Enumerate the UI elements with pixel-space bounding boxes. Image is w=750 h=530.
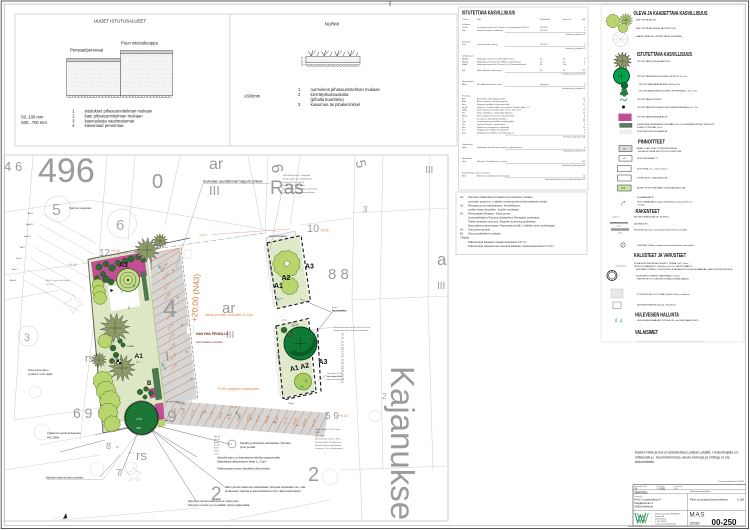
svg-text:Hun 16: Hun 16: [214, 436, 220, 438]
svg-text:Kuivausjalusteineet KD/02: Kuivausjalusteineet KD/02: [718, 480, 744, 483]
svg-text:pintavesien valunta ei olisi k: pintavesien valunta ei olisi kohdistunut…: [225, 489, 302, 493]
svg-text:37E8: 37E8: [315, 432, 319, 434]
svg-text:Köynnökset, yhteensä 3: Köynnökset, yhteensä 3: [564, 150, 586, 153]
svg-text:Sailytettava alkuperainen laat: Sailytettava alkuperainen laata 1..2 kpl…: [217, 460, 268, 464]
svg-text:B1: B1: [460, 232, 464, 236]
svg-text:Pinus sylvestris, mänty: Pinus sylvestris, mänty: [477, 43, 497, 46]
svg-text:NYKYINEN LEHTIPENSASAITA: NYKYINEN LEHTIPENSASAITA: [637, 130, 668, 133]
svg-text:Crataegus media 'Paul's Scarle: Crataegus media 'Paul's Scarlet', ruusuo…: [477, 26, 530, 29]
svg-text:olev kspuut 3:1 kpl: olev kspuut 3:1 kpl: [327, 372, 343, 375]
svg-text:HULEVESIÄ KERÄÄVÄ ISTUTUSALUE,: HULEVESIÄ KERÄÄVÄ ISTUTUSALUE, vain KAUU…: [637, 319, 700, 322]
svg-text:· · ·: · · ·: [620, 195, 625, 199]
svg-text:A1: A1: [135, 353, 144, 360]
svg-text:Puun istutuskuoppa: Puun istutuskuoppa: [121, 41, 158, 46]
svg-text:A2: A2: [282, 275, 291, 282]
svg-text:Kva 16: Kva 16: [214, 445, 220, 447]
svg-text:Kasvualusta parannetaan. Narsi: Kasvualusta parannetaan. Narsisseja juur…: [468, 224, 556, 228]
svg-text:5 9: 5 9: [325, 411, 339, 422]
svg-text:NYKYINEN ASFALTTI: NYKYINEN ASFALTTI: [637, 157, 658, 160]
svg-text:Lamprocapnos spectabilis, särk: Lamprocapnos spectabilis, särkynytsydän: [477, 120, 514, 123]
svg-text:tarkemitattu.: tarkemitattu.: [635, 460, 655, 464]
svg-text:00-250: 00-250: [712, 518, 737, 527]
svg-text:Nimi: Nimi: [477, 19, 482, 21]
svg-text:ASFALTTI AB, UUSI. JYSITETEEN-: ASFALTTI AB, UUSI. JYSITETEEN-EIÄ JA: [637, 147, 677, 150]
svg-text:ISTUTETTAVA KASVILLISUUS: ISTUTETTAVA KASVILLISUUS: [462, 11, 515, 17]
svg-text:Hydrangea arborescens 'Annabel: Hydrangea arborescens 'Annabelle' h=1m: [477, 57, 515, 60]
svg-text:+8.05: +8.05: [136, 418, 143, 421]
svg-text:Sipulikukat: Sipulikukat: [462, 157, 472, 160]
svg-text:A1: A1: [460, 195, 464, 199]
svg-text:+8.30: +8.30: [230, 405, 238, 409]
svg-text:Ennole 20te2. od. huolehdta la: Ennole 20te2. od. huolehdta laitt.: [283, 177, 313, 180]
svg-text:IQ1 2x4 IO34x 9 10uo 1 .980u: IQ1 2x4 IO34x 9 10uo 1 .980u: [315, 439, 340, 441]
svg-text:laatta 1: laatta 1: [332, 306, 338, 309]
svg-text:A3: A3: [119, 262, 128, 269]
svg-text:22030: 22030: [690, 521, 700, 525]
svg-text:Tilalle istutetaan uusi puu.: Tilalle istutetaan uusi puu. Poppelin ju…: [468, 220, 537, 224]
svg-text:KUIVAUSTELINE/ METALLIRUNKO, T: KUIVAUSTELINE/ METALLIRUNKO, TUMMA. 4x(2…: [634, 262, 689, 265]
svg-text:A4: A4: [460, 228, 464, 232]
svg-text:Pensaat/perenaat: Pensaat/perenaat: [70, 48, 104, 53]
svg-text:Hosta fortunei, komeakuunlilja: Hosta fortunei, komeakuunlilja - Hosta '…: [477, 109, 522, 112]
svg-text:Nars: Nars: [462, 161, 466, 163]
svg-text:kaivumaa tai pihakerrokset: kaivumaa tai pihakerrokset: [311, 102, 362, 107]
svg-text:1: 1: [128, 306, 130, 310]
svg-text:muuri: muuri: [617, 225, 622, 228]
svg-text:+6.40: +6.40: [68, 263, 77, 267]
svg-text:Pensasaidat leikataan. Kaksi p: Pensasaidat leikataan. Kaksi puuta: [468, 211, 510, 215]
svg-text:OLEVA JA KAADETTAVA KASVILLISU: OLEVA JA KAADETTAVA KASVILLISUUS: [634, 11, 708, 17]
svg-text:SEN ALLA OLEVA JUNTOITUS POURE: SEN ALLA OLEVA JUNTOITUS POUREITUNE: [638, 150, 682, 153]
svg-text:6 9: 6 9: [73, 405, 93, 421]
svg-text:KpaR 1: KpaR 1: [24, 236, 32, 238]
svg-text:puun juurilla: puun juurilla: [240, 445, 256, 449]
svg-text:8: 8: [106, 441, 111, 451]
svg-text:A3: A3: [305, 264, 314, 271]
svg-text:B: B: [147, 381, 152, 387]
svg-text:A3: A3: [460, 211, 464, 215]
svg-text:Aruncus dioicus, isotöyhtöange: Aruncus dioicus, isotöyhtöangervo: [477, 100, 508, 103]
svg-text:+8.50: +8.50: [320, 229, 329, 233]
svg-text:4: 4: [4, 159, 11, 174]
svg-text:ILMAN PYÖRISTÄÄ, H 1m: ILMAN PYÖRISTÄÄ, H 1m: [637, 126, 662, 129]
svg-text:PYSAKB: PYSAKB: [126, 345, 135, 348]
svg-text:LAUTAMUURI: LAUTAMUURI: [634, 222, 648, 225]
svg-text:PUURUNKOJ/ VARPIKI, MATERIAALI: PUURUNKOJ/ VARPIKI, MATERIAALI, h=koryt: [636, 274, 680, 277]
svg-text:III: III: [437, 281, 445, 292]
svg-text:RUNKOON MAALATTU. 600x50cm h=: RUNKOON MAALATTU. 600x50cm h=1.2m. VÄRIÖ…: [634, 265, 693, 268]
svg-text:Perennat: Perennat: [462, 94, 471, 97]
svg-text:BETONITUKIMUURIALUE, SILIVELU: BETONITUKIMUURIALUE, SILIVELU: [634, 216, 669, 219]
svg-text:LM: LM: [462, 124, 465, 126]
svg-text:Rakennesuunnitelma: Rakennesuunnitelma: [690, 490, 711, 493]
svg-text:Hydrangea paniculata 'Grandifl: Hydrangea paniculata 'Grandiflora', syys…: [477, 60, 522, 63]
svg-text:Kivetyn: Kivetyn: [638, 203, 646, 206]
svg-text:6: 6: [116, 217, 124, 234]
svg-text:Hosta undulata 'Erromena', käl: Hosta undulata 'Erromena', kälmäkuunlilj…: [477, 114, 515, 117]
svg-text:0: 0: [152, 171, 163, 193]
svg-text:Aral 1: Aral 1: [28, 212, 34, 215]
svg-text:Pisy: Pisy: [462, 44, 466, 46]
svg-text:Havupuut: Havupuut: [462, 40, 471, 43]
svg-text:4: 4: [163, 295, 177, 323]
svg-text:betonilaatat pohjalta: betonilaatat pohjalta: [196, 340, 223, 344]
svg-text:6: 6: [15, 159, 22, 174]
svg-text:nays! depot: nays! depot: [315, 434, 325, 437]
svg-text:Telkinamarja istutus kahdella: Telkinamarja istutus kahdella rivilla li…: [217, 467, 271, 471]
svg-text:rs: rs: [136, 448, 147, 463]
svg-text:Sorc 1: Sorc 1: [12, 269, 19, 271]
svg-text:A2: A2: [460, 203, 464, 207]
svg-text:CraPa: CraPa: [462, 27, 469, 29]
svg-text:KIEPPIKOETTU/ TURKISTETTURAUTK: KIEPPIKOETTU/ TURKISTETTURAUTKUNKA PÄÄLL…: [637, 277, 689, 280]
svg-text:Perennat, yhteensä 123: Perennat, yhteensä 123: [564, 135, 586, 138]
svg-text:Köynnökset: Köynnökset: [462, 143, 473, 146]
svg-text:Lehtipuut: Lehtipuut: [462, 23, 471, 26]
svg-text:2: 2: [133, 284, 135, 288]
svg-text:näky?llä tätäkp? ho?julkis?val: näky?llä tätäkp? ho?julkis?valamia? ? m?…: [637, 340, 705, 343]
svg-text:921 80ab 8xPfu 1/2 90ap nfuus: 921 80ab 8xPfu 1/2 90ap nfuus: [315, 442, 341, 444]
svg-text:Bergenia cordifolia, herttavuo: Bergenia cordifolia, herttavuorenkilpi: [477, 103, 510, 106]
svg-text:Lehtipuut, yhteensä 2: Lehtipuut, yhteensä 2: [566, 33, 586, 36]
svg-text:5: 5: [52, 202, 61, 219]
svg-text:eleva kr-kaytava: eleva kr-kaytava: [269, 235, 287, 238]
svg-text:ISTUTETTAVA KESKIKOKOINEN LEHT: ISTUTETTAVA KESKIKOKOINEN LEHTIPENSAS 1,…: [639, 90, 697, 93]
svg-text:≥300mm: ≥300mm: [244, 94, 261, 99]
svg-text:NUR: NUR: [621, 188, 626, 190]
svg-text:Yläpiha:: Yläpiha:: [460, 236, 470, 240]
svg-text:ISTUTETTAVA KESKIKOKOINEN LEHT: ISTUTETTAVA KESKIKOKOINEN LEHTIPUU 3,5..…: [637, 75, 687, 78]
svg-text:Tunnus: Tunnus: [462, 19, 469, 21]
svg-text:Sipulikukat, yhteensä 100: Sipulikukat, yhteensä 100: [562, 164, 586, 167]
svg-text:Ribes alpinum, taikinamarja: Ribes alpinum, taikinamarja: [477, 69, 502, 72]
svg-text:bfgh 41 xxpyoln uwbx hktklop: bfgh 41 xxpyoln uwbx hktklop: [46, 279, 69, 282]
svg-text:Kajanuksenkatu: Kajanuksenkatu: [384, 366, 421, 530]
svg-text:tukimuuri: tukimuuri: [613, 216, 620, 219]
svg-text:Osfu 7: Osfu 7: [214, 451, 219, 453]
svg-text:KIVIPESÄ, 610 As, yhteydet ist: KIVIPESÄ, 610 As, yhteydet istutuspainot…: [637, 244, 695, 247]
svg-text:Hydrangea paniculata 'Praecox': Hydrangea paniculata 'Praecox' h=2, kuut…: [477, 63, 527, 66]
svg-text:+9.10: +9.10: [339, 414, 348, 418]
svg-text:11.02.2021: 11.02.2021: [635, 526, 643, 528]
svg-text:HofA: HofA: [462, 109, 467, 112]
svg-text:PINNOITTEET: PINNOITTEET: [638, 140, 666, 146]
svg-text:Heuchera 'Timeless Night', kei: Heuchera 'Timeless Night', keijunkukka '…: [477, 106, 530, 109]
svg-text:125-150: 125-150: [540, 30, 548, 32]
svg-text:Pateceva lat raiteet: Pateceva lat raiteet: [28, 369, 49, 372]
svg-text:NURMI: NURMI: [325, 22, 339, 27]
svg-text:SÄILYTETTÄVÄ PUU: SÄILYTETTÄVÄ PUU: [636, 18, 657, 21]
svg-text:Lam: Lam: [462, 121, 466, 123]
svg-text:Taikinamarja raskaamman vieres: Taikinamarja raskaamman vieressä leikata…: [468, 244, 554, 248]
svg-text:Piha- ja ympäristösuunnitelma: Piha- ja ympäristösuunnitelma: [690, 497, 728, 501]
svg-text:Rakmalit alustan valmistelukuk: Rakmalit alustan valmistelukuk: [315, 444, 341, 447]
svg-text:KIVIREUNUS + KASVUALUSTA: KIVIREUNUS + KASVUALUSTA: [637, 177, 668, 180]
svg-text:Hpet: Hpet: [462, 146, 467, 149]
svg-text:Iris sibirica, siperiankurjenm: Iris sibirica, siperiankurjenmiekka: [477, 118, 507, 120]
svg-text:150-200: 150-200: [540, 27, 548, 29]
svg-text:EH-KIOSKI (betoni), vanhatehda: EH-KIOSKI (betoni), vanhatehdas Kioski, …: [634, 229, 688, 232]
svg-text:kk-et. (m): kk-et. (m): [563, 18, 572, 21]
svg-text:ISTUTETTAVA KASVILLISUUS: ISTUTETTAVA KASVILLISUUS: [637, 52, 692, 58]
svg-text:tunu: tunu: [136, 361, 140, 364]
svg-text:Narcissus 'Dutch Master', nars: Narcissus 'Dutch Master', narsissi: [477, 160, 507, 163]
svg-text:ISTUTETTAVA PERENNA-ALUE: ISTUTETTAVA PERENNA-ALUE: [637, 116, 668, 119]
svg-text:NAKYMA PENKILLE: NAKYMA PENKILLE: [196, 332, 229, 336]
svg-text:HULEVESIEN HALLINTA: HULEVESIEN HALLINTA: [635, 312, 679, 318]
svg-text:JÄTEKATOS/ASTIAT (betoni), 19: JÄTEKATOS/ASTIAT (betoni), 190x135cm: [637, 303, 676, 306]
svg-text:+0.00 nykyinen maanpinta: +0.00 nykyinen maanpinta: [217, 387, 259, 391]
svg-text:lev 81 158x2 6,8m puuto: lev 81 158x2 6,8m puuto: [283, 184, 306, 187]
svg-text:tahtien tontin ehd. viheraluee: tahtien tontin ehd. viheralueet ylapuole…: [334, 329, 369, 332]
svg-text:elevat portaat, nousu&lt;=0,13: elevat portaat, nousu&lt;=0,13m: [205, 313, 253, 317]
svg-text:1:100: 1:100: [737, 497, 744, 501]
svg-text:3: 3: [363, 205, 368, 214]
svg-text:HULE-PAINAUMA, kaadoilla. Muot: HULE-PAINAUMA, kaadoilla. Muotoillaan ka…: [637, 200, 693, 203]
svg-text:SAHATEKMALA: SAHATEKMALA: [635, 491, 649, 494]
svg-text:Matt: Matt: [462, 174, 466, 177]
svg-text:Matteuccia struthiopteris, kot: Matteuccia struthiopteris, kotkansiipi: [477, 126, 510, 129]
svg-text:HypaP: HypaP: [462, 64, 469, 66]
svg-text:125-150: 125-150: [540, 44, 548, 46]
svg-text:Parv 8: Parv 8: [16, 258, 23, 260]
svg-text:mittavastuu. Suunnitelmissa ol: mittavastuu. Suunnitelmissa olevia korko…: [635, 455, 730, 459]
svg-text:Polygonatum multiflorum, kalli: Polygonatum multiflorum, kalliokielo: [477, 129, 510, 132]
svg-text:ISTUTETTAVA KORKEA HAVUPUU: ISTUTETTAVA KORKEA HAVUPUU: [637, 60, 671, 63]
svg-text:PYYKINTELINE (JUOTTURA), Mankk: PYYKINTELINE (JUOTTURA), Mankki 200cm, v…: [637, 293, 690, 296]
svg-text:3: 3: [301, 63, 303, 67]
svg-text:Rodgersia aesculifolia, sormiv: Rodgersia aesculifolia, sormivaleangervo: [477, 133, 514, 135]
svg-text:NURMI, HYÖDYNNETÄÄN OLEVA KASV: NURMI, HYÖDYNNETÄÄN OLEVA KASVUALUSTA: [637, 187, 686, 190]
svg-text:olev kspuut 3:1 kpl: olev kspuut 3:1 kpl: [327, 375, 343, 378]
svg-text:Havupensaat: Havupensaat: [462, 80, 474, 83]
svg-text:Alchemilla mollis, jättipoimul: Alchemilla mollis, jättipoimulehti: [477, 97, 506, 100]
svg-text:Sovledaan saunattomast naapuri: Sovledaan saunattomast naapurin pintaan: [203, 180, 263, 184]
svg-text:Havupuut, yhteensä 1: Havupuut, yhteensä 1: [566, 47, 586, 50]
svg-text:KAADETTAVA PUU/ SIIRRETTÄVÄ VI: KAADETTAVA PUU/ SIIRRETTÄVÄ VIS PENSAS: [636, 35, 682, 38]
svg-text:min! koatsluvat ja lepiskle v: min! koatsluvat ja lepiskle vahemmiste: [283, 188, 318, 191]
svg-text:Nykyinen suojelualue: Nykyinen suojelualue: [69, 207, 92, 210]
svg-text:Sorc: Sorc: [462, 30, 466, 32]
svg-text:pihan rakentamisala: pihan rakentamisala: [327, 378, 345, 381]
svg-text:swx EC 1t: swx EC 1t: [46, 283, 55, 286]
svg-text:ISTUTETTAVA SIPULIKASVI TAI KO: ISTUTETTAVA SIPULIKASVI TAI KORKEA PEREN…: [637, 106, 698, 109]
svg-text:HypaG: HypaG: [462, 61, 469, 63]
svg-text:astiataimi: astiataimi: [540, 83, 549, 86]
svg-text:496: 496: [38, 152, 95, 190]
svg-text:Pensaat ja puut tarkastetaan.: Pensaat ja puut tarkastetaan. Hoitoleikk…: [468, 203, 521, 207]
svg-text:Maininta kulmittain olevilta 1: Maininta kulmittain olevilta 110,5 m ero…: [334, 326, 371, 329]
svg-text:pysakoint. tontin rajalla: pysakoint. tontin rajalla: [28, 373, 53, 376]
svg-text:kuivausteline: kuivausteline: [616, 264, 626, 267]
svg-text:ISTUTETTAVA MATALA/PIENI PUU H: ISTUTETTAVA MATALA/PIENI PUU H=2,5m: [639, 83, 680, 86]
svg-text:Rod: Rod: [462, 133, 466, 135]
svg-text:Koristeheinät, sarat ja saniai: Koristeheinät, sarat ja saniaiset, yhtee…: [545, 178, 586, 181]
svg-text:SÄILYTETTÄVÄ PENSAS TAI PENSOT: SÄILYTETTÄVÄ PENSAS TAI PENSOTUS: [636, 27, 676, 30]
svg-text:Koristeheinät, sarat ja saniai: Koristeheinät, sarat ja saniaiset: [462, 171, 490, 174]
svg-text:RAKENTEET: RAKENTEET: [636, 209, 661, 215]
svg-text:mullan lisäys+kuorikate. Juuri: mullan lisäys+kuorikate. Juurille narsis…: [468, 207, 519, 211]
svg-text:2: 2: [308, 464, 319, 486]
svg-text:kioski: kioski: [618, 232, 623, 234]
svg-text:Sorbus aucuparia, kotipihlaja: Sorbus aucuparia, kotipihlaja: [477, 29, 504, 32]
svg-text:Nare 1: Nare 1: [214, 442, 219, 444]
svg-text:Mat: Mat: [462, 126, 466, 129]
svg-text:HyaAn: HyaAn: [462, 57, 468, 60]
svg-text:Nykyisen kaide-ja telpit puret: Nykyisen kaide-ja telpit puretaan: [46, 476, 84, 480]
svg-text:Hydrangea anomala ssp. petiola: Hydrangea anomala ssp. petiolaris, köysi…: [477, 146, 523, 149]
svg-text:Taikinamarja leikataan vapaamu: Taikinamarja leikataan vapaamuotoiseksi …: [468, 240, 527, 244]
svg-text:ar: ar: [209, 156, 224, 173]
svg-text:Havupensaat, yhteensä 3: Havupensaat, yhteensä 3: [562, 87, 586, 90]
svg-text:HeTN: HeTN: [462, 107, 468, 109]
svg-text:ISTUTETTAVA KÖYNNÖS: ISTUTETTAVA KÖYNNÖS: [637, 98, 662, 101]
svg-text:Lehtipensaat: Lehtipensaat: [462, 55, 474, 58]
svg-text:LEIKATTAVA PENSASAITA, PIDETÄÄ: LEIKATTAVA PENSASAITA, PIDETÄÄN 110,5 m …: [637, 123, 715, 126]
svg-text:HyuO: HyuO: [462, 115, 468, 117]
svg-text:etunimi.sukunimi@vihrekä.fi: etunimi.sukunimi@vihrekä.fi: [655, 522, 677, 525]
svg-text:puut ja lavat sailyy kunnet pi: puut ja lavat sailyy kunnet pihakette: [283, 191, 315, 194]
svg-text:G-906: G-906: [659, 489, 666, 491]
svg-text:Matteuccia struthiopteris, kot: Matteuccia struthiopteris, kotkansiipi: [477, 174, 510, 177]
svg-text:10: 10: [307, 223, 319, 235]
svg-text:OSK 004 Kuuska 1.1 Sagiralla: OSK 004 Kuuska 1.1 Sagiralla: [283, 175, 311, 177]
svg-text:Oleva pyykkiteline uusitaan: Oleva pyykkiteline uusitaan: [468, 232, 501, 236]
svg-text:500...700 mm: 500...700 mm: [21, 120, 47, 125]
svg-text:IHIP: IHIP: [136, 426, 141, 430]
svg-text:Berc: Berc: [462, 104, 466, 106]
svg-text:8 8: 8 8: [328, 266, 349, 283]
svg-text:nurmikon parannus. Lisätään mu: nurmikon parannus. Lisätään multaa ja si…: [468, 199, 548, 203]
svg-text:Scft 3: Scft 3: [214, 447, 219, 450]
svg-text:HpaW 1: HpaW 1: [26, 224, 34, 226]
svg-text:Lehtipensaat, yhteensä 59: Lehtipensaat, yhteensä 59: [562, 73, 586, 76]
svg-text:+8.9: +8.9: [281, 318, 287, 322]
svg-text:MAS: MAS: [690, 512, 706, 519]
svg-text:A1: A1: [274, 283, 283, 290]
svg-text:III: III: [425, 165, 433, 176]
svg-text:m-hapuser. Puhu - tienalustava: m-hapuser. Puhu - tienalustavam: [315, 447, 343, 450]
svg-text:KALUSTEET JA VARUSTEET: KALUSTEET JA VARUSTEET: [634, 253, 687, 259]
svg-text:Kokoluokka: Kokoluokka: [540, 19, 551, 21]
svg-text:50..100 mm: 50..100 mm: [21, 115, 44, 120]
svg-text:KIVITUHKA, D. 0...4mm, harmaa: KIVITUHKA, D. 0...4mm, harmaa: [637, 167, 668, 170]
svg-text:Pia! 31: Pia! 31: [214, 439, 220, 441]
svg-text:MIde 3: MIde 3: [10, 280, 17, 282]
svg-text:h=C.305M: h=C.305M: [47, 436, 59, 440]
svg-text:+6.30: +6.30: [111, 249, 120, 253]
svg-text:Nykyinen muurin yp on asfaltin: Nykyinen muurin yp on asfaltin pinnan yl…: [188, 503, 250, 507]
svg-text:Microbiota decussata, tuivio: Microbiota decussata, tuivio: [477, 83, 503, 86]
svg-text:Hosta sieboldiana, sinikuunlil: Hosta sieboldiana, sinikuunlilja 'Elegan…: [477, 112, 513, 115]
svg-text:Linjakouron purku kivipesaan: Linjakouron purku kivipesaan: [47, 431, 81, 435]
svg-text:00920 Helsinki: 00920 Helsinki: [635, 505, 654, 509]
svg-text:Oleva KSpulee 3.1 kal 1 laatta: Oleva KSpulee 3.1 kal 1 laatta: [315, 428, 341, 431]
svg-text:kaivumaa/ perusmaa: kaivumaa/ perusmaa: [85, 123, 125, 128]
svg-text:Nurmikon kallistukset korjataa: Nurmikon kallistukset korjataan suunnite…: [468, 195, 533, 199]
svg-text:(omenapihlaja ja Populus balsa: (omenapihlaja ja Populus balsamifera 'El…: [468, 215, 540, 219]
svg-text:UUDET ISTUTUSALUEET: UUDET ISTUTUSALUEET: [94, 19, 146, 24]
svg-text:III: III: [209, 183, 220, 198]
svg-text:BESTÄÄN TODNNUT 2 HIPPUSTEI: BESTÄÄN TODNNUT 2 HIPPUSTEILLA JA HANKUR…: [636, 268, 733, 271]
svg-text:Uusi perenna-alue: Uusi perenna-alue: [468, 228, 490, 232]
svg-text:Ligularia 'Rocket', rakettinau: Ligularia 'Rocket', rakettinauhus: [477, 123, 505, 126]
svg-text:Kaikki mitat ja korot tarkiste: Kaikki mitat ja korot tarkistettava paik…: [635, 451, 739, 455]
svg-text:Alm: Alm: [462, 97, 466, 100]
svg-text:SORASAUMATTU: SORASAUMATTU: [637, 196, 655, 199]
svg-text:VALAISIMET: VALAISIMET: [635, 330, 659, 336]
svg-text:1: 1: [305, 379, 307, 383]
svg-text:kasiverkko: kasiverkko: [332, 309, 347, 313]
svg-text:ta-yla 101 (Oun 3,70x2): ta-yla 101 (Oun 3,70x2): [283, 181, 304, 184]
svg-text:????: ????: [199, 234, 207, 238]
svg-text:·: ·: [616, 303, 617, 307]
svg-text:3: 3: [24, 332, 30, 344]
